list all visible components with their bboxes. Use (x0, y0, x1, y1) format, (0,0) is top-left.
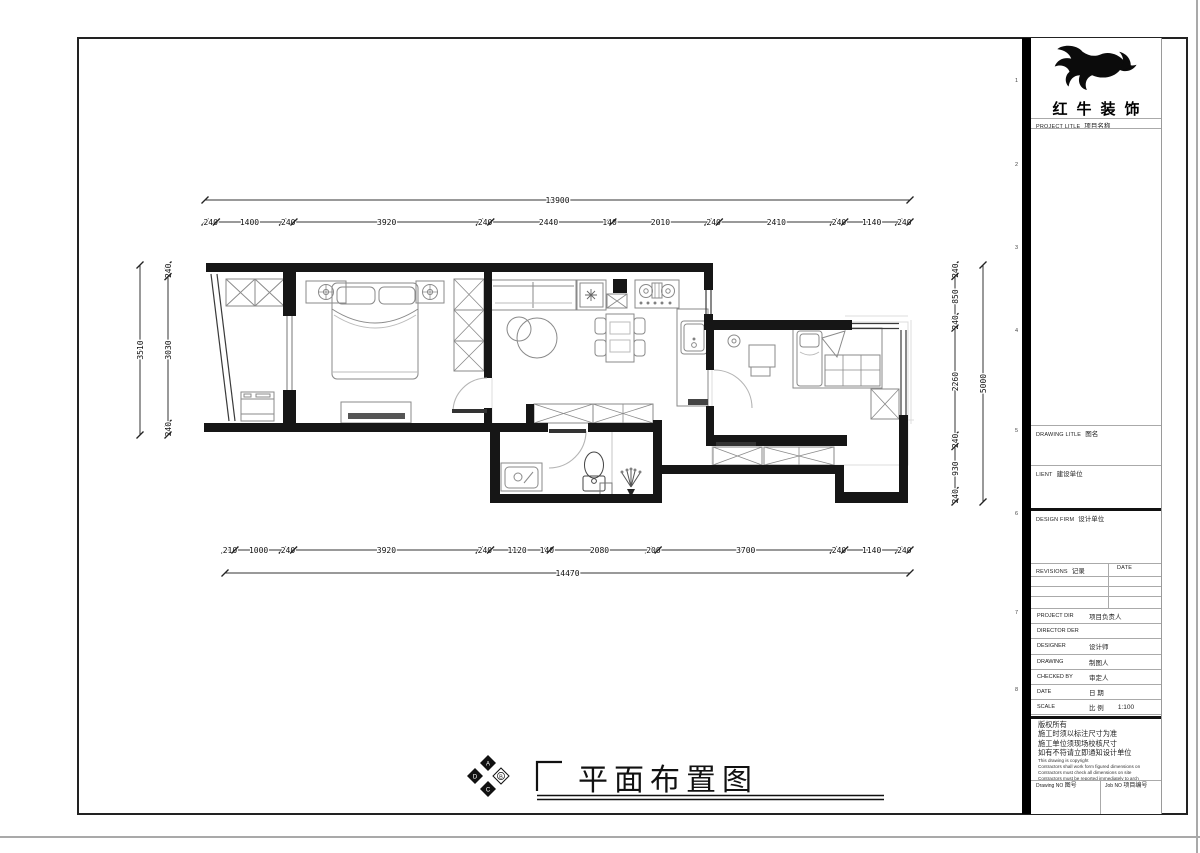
refrigerator (577, 280, 606, 310)
grid-number-3: 3 (1006, 245, 1018, 251)
compass-letter-b: B (499, 775, 503, 781)
drawing-sheet: { "sheet": { "drawing_title": "平面布置图", "… (0, 0, 1200, 853)
corner-wardrobe (871, 389, 899, 419)
copyright-notes: 版权所有施工时须以标注尺寸为准施工单位须现场校核尺寸如有不符请立即通知设计单位 … (1038, 720, 1158, 782)
svg-text:1140: 1140 (862, 218, 881, 227)
floor-plan-canvas: 1390024014002403920240244014020102402410… (0, 0, 1200, 853)
tv-cabinet (341, 402, 411, 423)
svg-text:3920: 3920 (377, 546, 396, 555)
grid-number-1: 1 (1006, 78, 1018, 84)
nightstand-right (416, 281, 444, 303)
single-bed (793, 328, 882, 388)
design-firm-label-cn: 设计单位 (1078, 513, 1104, 523)
master-door-leaf (452, 409, 487, 413)
bedroom2-right-window (901, 330, 906, 415)
bathroom-vanity (501, 463, 542, 491)
dimension-annotations: 1390024014002403920240244014020102402410… (136, 196, 988, 578)
staff-rows: PROJECT DIR项目负责人DIRECTOR DERDESIGNER设计师D… (1031, 608, 1161, 715)
grid-number-8: 8 (1006, 687, 1018, 693)
drawing-title-label-en: DRAWING LITLE (1036, 432, 1081, 438)
job-no-label-cn: 项目编号 (1123, 783, 1147, 789)
svg-text:13900: 13900 (545, 196, 569, 205)
drawing-no-divider (1100, 780, 1101, 814)
drawing-title-label-cn: 图名 (1085, 428, 1098, 438)
drawing-no-label-en: Drawing NO (1036, 783, 1063, 789)
balcony-window-slanted (211, 274, 235, 421)
gas-stove (635, 280, 679, 308)
titleblock-divider-bar (1022, 38, 1031, 814)
revisions-date-label: DATE (1117, 565, 1132, 571)
svg-text:930: 930 (951, 461, 960, 476)
svg-text:3700: 3700 (736, 546, 755, 555)
compass-letter-d: D (473, 775, 478, 781)
svg-text:2080: 2080 (590, 546, 609, 555)
svg-text:850: 850 (951, 289, 960, 304)
svg-text:1400: 1400 (240, 218, 259, 227)
grid-number-6: 6 (1006, 511, 1018, 517)
revisions-label-en: REVISIONS (1036, 569, 1068, 575)
revisions-header-row: REVISIONS 记录 DATE (1036, 565, 1159, 575)
staff-row-5: DATE日 期 (1031, 685, 1161, 700)
revisions-label-cn: 记录 (1072, 565, 1085, 575)
master-wardrobe (454, 279, 484, 371)
sheet-title-group: A B C D 平面布置图 (467, 755, 884, 800)
compass-letter-a: A (486, 762, 490, 768)
notes-chinese: 版权所有施工时须以标注尺寸为准施工单位须现场校核尺寸如有不符请立即通知设计单位 (1038, 720, 1158, 758)
furniture (226, 279, 899, 497)
drawing-no-cell: Drawing NO 图号 (1036, 780, 1077, 814)
kitchen-counter-sink (677, 309, 708, 406)
entry-door-leaf (716, 442, 756, 446)
svg-text:2440: 2440 (539, 218, 558, 227)
sheet-title-text: 平面布置图 (578, 763, 758, 798)
construction-lines (492, 316, 914, 465)
svg-text:3920: 3920 (377, 218, 396, 227)
compass-letter-c: C (486, 788, 491, 794)
svg-text:2260: 2260 (951, 372, 960, 391)
drawing-title-row: DRAWING LITLE 图名 (1036, 428, 1159, 438)
nightstand-left (306, 281, 346, 303)
double-bed (332, 283, 418, 379)
bathroom-door-leaf (549, 429, 586, 433)
kitchen-cabinet-small (607, 294, 627, 308)
staff-row-4: CHECKED BY审定人 (1031, 670, 1161, 685)
drawing-no-label-cn: 图号 (1065, 783, 1077, 789)
master-door-arc (453, 378, 487, 412)
svg-text:5000: 5000 (979, 374, 988, 393)
hall-cabinets (534, 404, 653, 423)
client-row: LIENT 建设单位 (1036, 468, 1159, 478)
design-firm-label-en: DESIGN FIRM (1036, 517, 1074, 523)
notes-english: This drawing is copyrightContractors sha… (1038, 758, 1158, 782)
dining-table (595, 314, 645, 362)
svg-text:3030: 3030 (164, 340, 173, 359)
desk-and-stool (728, 335, 775, 376)
svg-text:2410: 2410 (767, 218, 786, 227)
staff-row-2: DESIGNER设计师 (1031, 639, 1161, 654)
job-no-cell: Job NO 项目编号 (1105, 780, 1147, 814)
svg-text:1000: 1000 (249, 546, 268, 555)
windows (211, 274, 906, 421)
grid-number-2: 2 (1006, 162, 1018, 168)
design-firm-row: DESIGN FIRM 设计单位 (1036, 513, 1159, 523)
title-block: 红牛装饰 PROJECT LITLE 项目名称 DRAWING LITLE 图名… (1031, 38, 1162, 814)
title-bracket (537, 762, 562, 791)
bedroom2-door-arc (714, 370, 752, 408)
staff-row-6: SCALE比 例1:100 (1031, 700, 1161, 715)
staff-row-3: DRAWING制图人 (1031, 655, 1161, 670)
entry-shoe-cabinets (713, 447, 834, 465)
svg-text:1120: 1120 (507, 546, 526, 555)
grid-number-5: 5 (1006, 428, 1018, 434)
client-label-cn: 建设单位 (1057, 468, 1083, 478)
coffee-table (507, 317, 557, 358)
revisions-column-divider (1108, 563, 1109, 608)
grid-number-4: 4 (1006, 328, 1018, 334)
compass-icon: A B C D (467, 755, 509, 797)
company-logo-bull-icon (1049, 43, 1144, 97)
grid-number-7: 7 (1006, 610, 1018, 616)
company-name: 红牛装饰 (1031, 98, 1161, 119)
balcony-cabinet (226, 279, 284, 306)
balcony-sliding-door (287, 316, 292, 390)
sofa (491, 280, 576, 310)
staff-row-0: PROJECT DIR项目负责人 (1031, 609, 1161, 624)
svg-text:14470: 14470 (555, 569, 579, 578)
staff-row-1: DIRECTOR DER (1031, 624, 1161, 639)
svg-text:1140: 1140 (862, 546, 881, 555)
toilet (583, 452, 605, 491)
svg-text:3510: 3510 (136, 340, 145, 359)
bathroom-door-arc (549, 431, 586, 468)
svg-text:2010: 2010 (651, 218, 670, 227)
client-label-en: LIENT (1036, 472, 1053, 478)
job-no-label-en: Job NO (1105, 783, 1122, 789)
shower-head (600, 432, 641, 497)
washing-machine (241, 392, 274, 421)
